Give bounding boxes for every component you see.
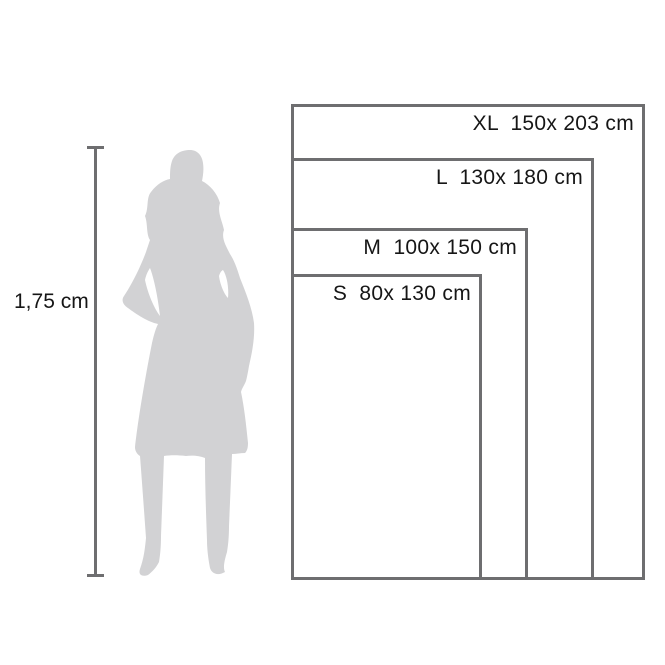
woman-silhouette <box>120 148 265 578</box>
size-label-l: L 130x 180 cm <box>436 165 583 190</box>
size-label-m: M 100x 150 cm <box>363 235 517 260</box>
measure-cap-top <box>87 146 104 149</box>
size-rect-s: S 80x 130 cm <box>291 274 482 580</box>
size-label-s: S 80x 130 cm <box>333 281 471 306</box>
height-value-label: 1,75 cm <box>14 290 89 314</box>
size-chart-diagram: XL 150x 203 cm L 130x 180 cm M 100x 150 … <box>0 0 665 665</box>
height-measure-line <box>94 147 97 577</box>
measure-cap-bottom <box>87 574 104 577</box>
size-label-xl: XL 150x 203 cm <box>473 111 634 136</box>
